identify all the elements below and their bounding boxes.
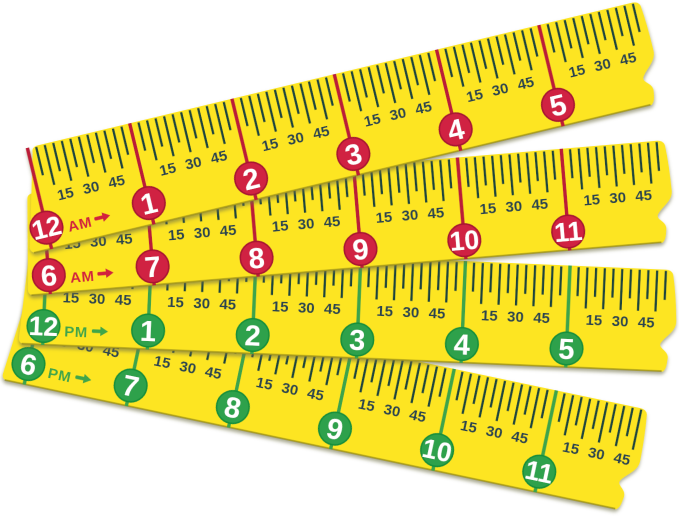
svg-text:30: 30 [611,313,628,331]
svg-text:6: 6 [40,260,59,293]
svg-text:30: 30 [193,295,210,313]
svg-text:2: 2 [244,320,261,353]
svg-text:15: 15 [479,200,497,218]
svg-text:15: 15 [583,191,601,209]
svg-text:45: 45 [637,314,654,332]
svg-text:45: 45 [203,363,223,383]
svg-text:15: 15 [561,438,581,458]
svg-text:15: 15 [167,294,184,312]
svg-text:30: 30 [402,304,419,322]
svg-text:45: 45 [427,204,445,222]
svg-text:30: 30 [193,224,211,242]
svg-text:45: 45 [531,195,549,213]
svg-text:30: 30 [505,198,523,216]
svg-text:15: 15 [271,217,289,235]
svg-text:30: 30 [382,401,402,421]
svg-text:12: 12 [28,311,59,342]
svg-text:30: 30 [298,299,315,317]
svg-text:15: 15 [357,395,377,415]
svg-text:45: 45 [306,385,326,405]
svg-text:15: 15 [585,312,602,330]
svg-text:7: 7 [143,251,162,284]
svg-text:15: 15 [376,303,393,321]
svg-text:45: 45 [324,300,341,318]
svg-text:30: 30 [88,290,105,308]
svg-text:30: 30 [280,379,300,399]
svg-text:45: 45 [408,406,428,426]
svg-text:AM: AM [69,268,95,287]
svg-text:45: 45 [219,222,237,240]
svg-text:45: 45 [114,291,131,309]
svg-text:30: 30 [178,358,198,378]
svg-text:15: 15 [375,208,393,226]
svg-text:45: 45 [219,296,236,314]
svg-text:45: 45 [428,305,445,323]
svg-text:15: 15 [271,298,288,316]
svg-text:15: 15 [152,352,172,372]
svg-text:30: 30 [484,422,504,442]
svg-text:1: 1 [139,316,156,349]
svg-text:30: 30 [297,215,315,233]
svg-text:15: 15 [459,417,479,437]
svg-text:30: 30 [586,444,606,464]
svg-text:30: 30 [507,308,524,326]
svg-text:15: 15 [167,226,185,244]
svg-text:3: 3 [349,325,366,358]
svg-text:4: 4 [453,329,470,362]
svg-text:5: 5 [558,334,575,367]
svg-text:15: 15 [481,307,498,325]
svg-text:15: 15 [254,374,274,394]
svg-text:45: 45 [533,309,550,327]
svg-text:10: 10 [448,225,480,257]
svg-text:PM: PM [64,323,88,341]
svg-text:45: 45 [510,428,530,448]
svg-text:45: 45 [323,213,341,231]
svg-text:45: 45 [612,449,632,469]
svg-text:45: 45 [635,187,653,205]
svg-text:30: 30 [609,189,627,207]
svg-text:11: 11 [553,216,583,248]
svg-text:30: 30 [401,206,419,224]
svg-text:9: 9 [351,234,370,267]
svg-text:8: 8 [247,242,266,275]
svg-text:10: 10 [420,433,455,468]
